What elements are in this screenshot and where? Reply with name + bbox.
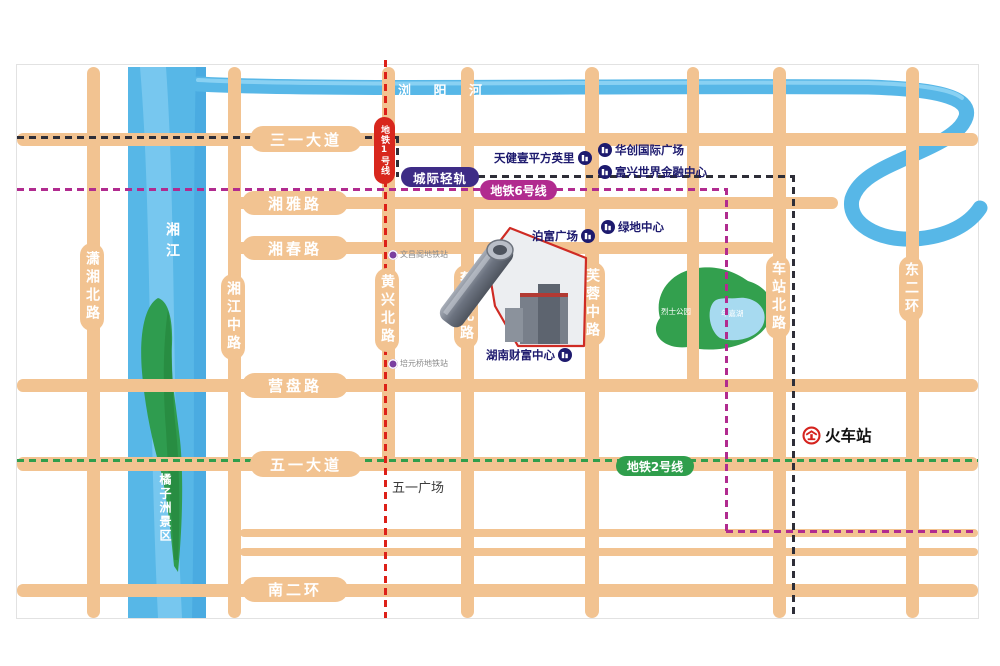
badge-metro-line1: 地铁1号线	[374, 117, 395, 184]
road-label-xiangya: 湘雅路	[242, 191, 348, 215]
road-dongerhuan	[906, 67, 919, 618]
poi-tianjian-label: 天健壹平方英里	[494, 150, 575, 166]
badge-metro-line6: 地铁6号线	[480, 180, 557, 200]
road-label-yingpan: 营盘路	[242, 373, 348, 398]
metro-line6-dash-mid	[556, 188, 726, 191]
road-minor-lower	[240, 548, 978, 556]
railway-station: 火车站	[802, 424, 872, 446]
road-label-chezhan: 车站北路	[766, 255, 790, 339]
metro-logo-icon	[388, 250, 398, 260]
road-label-sanyi: 三一大道	[250, 126, 362, 152]
building-icon	[598, 143, 612, 157]
badge-intercity-rail: 城际轻轨	[401, 167, 479, 187]
road-label-xiangjiang-mid: 湘江中路	[221, 274, 245, 360]
road-chezhan-beilu	[773, 67, 786, 618]
road-yingpan-lu	[17, 379, 978, 392]
building-icon	[598, 165, 612, 179]
metro-line6-dash-south	[725, 188, 728, 533]
metro-line2-dash	[17, 459, 978, 462]
station-wenchangge: 文昌阁地铁站	[388, 249, 448, 260]
road-label-wuyi: 五一大道	[250, 451, 362, 477]
station-peiyuanqiao: 培元桥地铁站	[388, 358, 448, 369]
location-map: 三一大道 湘雅路 湘春路 营盘路 五一大道 南二环 潇湘北路 湘江中路 黄兴北路…	[0, 0, 1000, 666]
poi-tianjian: 天健壹平方英里	[494, 150, 592, 166]
railway-station-label: 火车站	[825, 424, 872, 446]
label-juzizhou: 橘子洲景区	[157, 473, 174, 543]
building-icon	[558, 348, 572, 362]
badge-metro-line2: 地铁2号线	[616, 456, 694, 476]
poi-bofu-label: 泊富广场	[532, 228, 578, 244]
label-lieshi-park: 烈士公园	[661, 306, 691, 317]
intercity-rail-dash-south	[792, 175, 795, 618]
poi-lvdi-label: 绿地中心	[618, 219, 664, 235]
station-wenchangge-label: 文昌阁地铁站	[400, 249, 448, 260]
metro-logo-icon	[388, 359, 398, 369]
metro-line6-dash-east	[726, 530, 978, 533]
poi-huachuang-label: 华创国际广场	[615, 142, 684, 158]
road-unnamed-vertical	[687, 67, 699, 387]
building-icon	[581, 229, 595, 243]
poi-huachuang: 华创国际广场	[598, 142, 684, 158]
road-label-xiangchun: 湘春路	[242, 236, 348, 260]
label-liuyanghe: 浏 阳 河	[398, 80, 491, 99]
label-xiangjiang: 湘江	[162, 222, 182, 264]
poi-lvdi: 绿地中心	[601, 219, 664, 235]
road-label-huangxing: 黄兴北路	[375, 268, 399, 352]
poi-fuxing: 富兴世界金融中心	[598, 164, 707, 180]
road-label-xiaoxiang: 潇湘北路	[80, 243, 104, 331]
poi-hunan-caifu-label: 湖南财富中心	[486, 347, 555, 363]
building-icon	[578, 151, 592, 165]
road-nanerhuan	[17, 584, 978, 597]
railway-logo-icon	[802, 426, 821, 445]
intercity-rail-dash-corner	[396, 136, 399, 177]
poi-bofu: 泊富广场	[532, 228, 595, 244]
road-label-nanerhuan: 南二环	[242, 577, 348, 602]
station-peiyuanqiao-label: 培元桥地铁站	[400, 358, 448, 369]
building-icon	[601, 220, 615, 234]
metro-line6-dash-west	[17, 188, 481, 191]
poi-fuxing-label: 富兴世界金融中心	[615, 164, 707, 180]
road-label-dongerhuan: 东二环	[899, 256, 923, 322]
road-sanyi-dadao	[17, 133, 978, 146]
label-wuyi-square: 五一广场	[392, 477, 444, 496]
road-xiaoxiang-beilu	[87, 67, 100, 618]
poi-hunan-caifu: 湖南财富中心	[486, 347, 572, 363]
